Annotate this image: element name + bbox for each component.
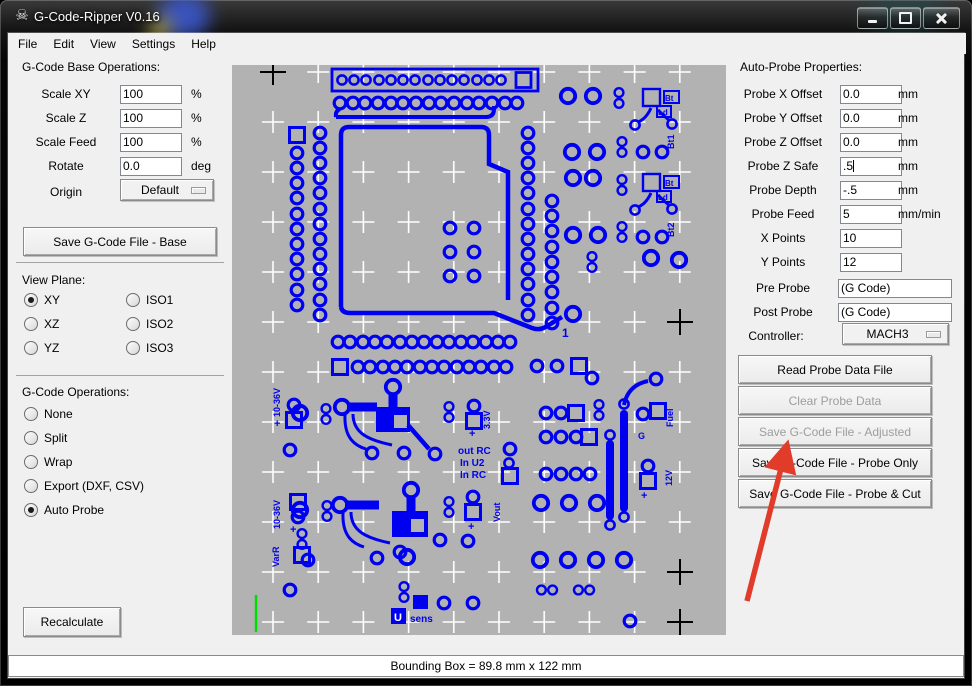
plus-label: +: [274, 418, 280, 430]
ld-label: Ld: [658, 193, 668, 202]
rotate-value: 0.0: [123, 159, 140, 173]
scale-z-unit: %: [191, 111, 202, 125]
bt2-label: Bt2: [666, 222, 676, 237]
radio-icon: [24, 317, 38, 331]
menu-edit[interactable]: Edit: [45, 35, 82, 53]
radio-label: XZ: [44, 317, 59, 331]
radio-op-autoprobe[interactable]: Auto Probe: [24, 503, 104, 517]
origin-label: Origin: [18, 185, 114, 199]
scale-xy-input[interactable]: 100: [120, 85, 182, 104]
radio-icon: [24, 503, 38, 517]
post-probe-value: (G Code): [841, 305, 890, 319]
base-operations-title: G-Code Base Operations:: [22, 60, 160, 74]
separator: [16, 375, 224, 376]
radio-icon: [126, 293, 140, 307]
v33-label: 3.3V: [482, 410, 492, 429]
auto-probe-title: Auto-Probe Properties:: [740, 60, 862, 74]
radio-icon: [24, 341, 38, 355]
controller-label: Controller:: [726, 329, 826, 343]
probe-x-offset-input[interactable]: 0.0: [840, 85, 902, 104]
radio-label: ISO2: [146, 317, 173, 331]
in-u2-label: In U2: [460, 458, 485, 469]
window-title: G-Code-Ripper V0.16: [34, 9, 160, 24]
probe-z-safe-value: .5: [843, 159, 853, 173]
plus-label: +: [468, 521, 474, 533]
radio-icon: [126, 317, 140, 331]
plus-label: +: [641, 490, 647, 502]
varr-label: VarR: [271, 546, 281, 567]
title-bar[interactable]: ☠ G-Code-Ripper V0.16: [0, 0, 972, 33]
bt-label: Bt: [665, 94, 674, 103]
g-label: G: [638, 431, 645, 441]
fuel-label: Fuel: [665, 408, 675, 427]
radio-view-iso2[interactable]: ISO2: [126, 317, 173, 331]
dropdown-indicator-icon: [191, 187, 206, 194]
plus-label: +: [469, 428, 475, 440]
rotate-label: Rotate: [18, 159, 114, 173]
radio-label: Auto Probe: [44, 503, 104, 517]
radio-label: Export (DXF, CSV): [44, 479, 144, 493]
maximize-button[interactable]: [890, 7, 921, 29]
scale-z-input[interactable]: 100: [120, 109, 182, 128]
probe-y-offset-unit: mm: [898, 111, 918, 125]
save-gcode-adjusted-button[interactable]: Save G-Code File - Adjusted: [738, 417, 932, 446]
menu-view[interactable]: View: [82, 35, 124, 53]
y-points-value: 12: [843, 255, 856, 269]
maximize-icon: [899, 12, 912, 24]
menu-bar: File Edit View Settings Help: [8, 33, 966, 54]
radio-label: XY: [44, 293, 60, 307]
minimize-icon: [868, 20, 877, 23]
plus-label: +: [290, 524, 296, 536]
v12-label: 12V: [664, 470, 674, 486]
post-probe-input[interactable]: (G Code): [838, 303, 952, 322]
dropdown-indicator-icon: [926, 331, 941, 338]
probe-depth-input[interactable]: -.5: [840, 181, 902, 200]
probe-x-offset-unit: mm: [898, 87, 918, 101]
clear-probe-data-button[interactable]: Clear Probe Data: [738, 386, 932, 415]
probe-z-safe-input[interactable]: .5: [840, 157, 902, 176]
read-probe-data-button[interactable]: Read Probe Data File: [738, 355, 932, 384]
menu-help[interactable]: Help: [183, 35, 224, 53]
menu-settings[interactable]: Settings: [124, 35, 183, 53]
radio-label: Split: [44, 431, 67, 445]
bt1-label: Bt1: [666, 134, 676, 149]
rotate-input[interactable]: 0.0: [120, 157, 182, 176]
probe-point-grid: [232, 65, 726, 635]
origin-dropdown[interactable]: Default: [120, 179, 214, 201]
text-cursor: [853, 160, 854, 172]
radio-label: Wrap: [44, 455, 72, 469]
probe-feed-unit: mm/min: [898, 207, 941, 221]
bt-label: Bt: [665, 179, 674, 188]
probe-depth-unit: mm: [898, 183, 918, 197]
radio-op-export[interactable]: Export (DXF, CSV): [24, 479, 144, 493]
radio-view-xy[interactable]: XY: [24, 293, 60, 307]
scale-feed-label: Scale Feed: [18, 135, 114, 149]
radio-op-split[interactable]: Split: [24, 431, 67, 445]
controller-dropdown[interactable]: MACH3: [842, 323, 949, 345]
y-points-input[interactable]: 12: [840, 253, 902, 272]
radio-icon: [24, 293, 38, 307]
scale-feed-unit: %: [191, 135, 202, 149]
origin-value: Default: [141, 183, 179, 197]
view-plane-title: View Plane:: [22, 273, 85, 287]
vin-top-label: 10-36V: [272, 388, 282, 417]
scale-z-value: 100: [123, 111, 143, 125]
save-gcode-probe-cut-button[interactable]: Save G-Code File - Probe & Cut: [738, 479, 932, 508]
gcode-operations-title: G-Code Operations:: [22, 385, 129, 399]
probe-z-safe-label: Probe Z Safe: [733, 159, 833, 173]
radio-label: ISO1: [146, 293, 173, 307]
rotate-unit: deg: [191, 159, 211, 173]
app-icon: ☠: [13, 7, 31, 25]
radio-icon: [24, 479, 38, 493]
probe-z-offset-input[interactable]: 0.0: [840, 133, 902, 152]
probe-feed-input[interactable]: 5: [840, 205, 902, 224]
probe-y-offset-value: 0.0: [843, 111, 860, 125]
probe-x-offset-label: Probe X Offset: [733, 87, 833, 101]
probe-z-offset-unit: mm: [898, 135, 918, 149]
probe-y-offset-input[interactable]: 0.0: [840, 109, 902, 128]
probe-feed-label: Probe Feed: [733, 207, 833, 221]
radio-view-xz[interactable]: XZ: [24, 317, 59, 331]
scale-feed-input[interactable]: 100: [120, 133, 182, 152]
client-area: File Edit View Settings Help G-Code Base…: [8, 33, 964, 678]
gcode-preview-canvas[interactable]: 1 Bt Ld Bt1 Bt Ld Bt2 10-36V + 10-36V + …: [232, 65, 726, 635]
save-gcode-probe-only-button[interactable]: Save G-Code File - Probe Only: [738, 448, 932, 477]
vout-label: Vout: [492, 503, 502, 522]
status-text: Bounding Box = 89.8 mm x 122 mm: [390, 659, 581, 673]
x-points-input[interactable]: 10: [840, 229, 902, 248]
minimize-button[interactable]: [857, 7, 888, 29]
status-bar: Bounding Box = 89.8 mm x 122 mm: [8, 655, 964, 677]
vin-bottom-label: 10-36V: [272, 500, 282, 529]
probe-z-safe-unit: mm: [898, 159, 918, 173]
pin1-label: 1: [562, 326, 569, 340]
controller-value: MACH3: [866, 327, 908, 341]
scale-xy-unit: %: [191, 87, 202, 101]
scale-xy-label: Scale XY: [18, 87, 114, 101]
ld-label: Ld: [658, 108, 668, 117]
probe-z-offset-value: 0.0: [843, 135, 860, 149]
menu-file[interactable]: File: [10, 35, 45, 53]
radio-view-yz[interactable]: YZ: [24, 341, 59, 355]
pre-probe-value: (G Code): [841, 281, 890, 295]
close-button[interactable]: [923, 7, 960, 29]
radio-op-none[interactable]: None: [24, 407, 73, 421]
radio-icon: [24, 431, 38, 445]
radio-icon: [24, 407, 38, 421]
usens-label: sens: [410, 614, 433, 625]
radio-icon: [126, 341, 140, 355]
probe-feed-value: 5: [843, 207, 850, 221]
separator: [16, 262, 224, 263]
x-points-value: 10: [843, 231, 856, 245]
radio-label: ISO3: [146, 341, 173, 355]
scale-z-label: Scale Z: [18, 111, 114, 125]
probe-z-offset-label: Probe Z Offset: [733, 135, 833, 149]
probe-depth-label: Probe Depth: [733, 183, 833, 197]
radio-view-iso1[interactable]: ISO1: [126, 293, 173, 307]
usens-u-label: U: [394, 612, 402, 624]
y-points-label: Y Points: [733, 255, 833, 269]
pre-probe-label: Pre Probe: [733, 281, 833, 295]
recalculate-button[interactable]: Recalculate: [23, 607, 121, 637]
in-rc-label: In RC: [460, 470, 486, 481]
radio-view-iso3[interactable]: ISO3: [126, 341, 173, 355]
scale-feed-value: 100: [123, 135, 143, 149]
radio-label: None: [44, 407, 73, 421]
out-rc-label: out RC: [458, 446, 491, 457]
probe-depth-value: -.5: [843, 183, 857, 197]
pre-probe-input[interactable]: (G Code): [838, 279, 952, 298]
post-probe-label: Post Probe: [733, 305, 833, 319]
probe-y-offset-label: Probe Y Offset: [733, 111, 833, 125]
radio-icon: [24, 455, 38, 469]
close-icon: [936, 13, 947, 24]
save-gcode-base-button[interactable]: Save G-Code File - Base: [23, 227, 217, 256]
probe-x-offset-value: 0.0: [843, 87, 860, 101]
radio-op-wrap[interactable]: Wrap: [24, 455, 72, 469]
scale-xy-value: 100: [123, 87, 143, 101]
x-points-label: X Points: [733, 231, 833, 245]
pcb-preview: 1 Bt Ld Bt1 Bt Ld Bt2 10-36V + 10-36V + …: [232, 65, 726, 635]
radio-label: YZ: [44, 341, 59, 355]
